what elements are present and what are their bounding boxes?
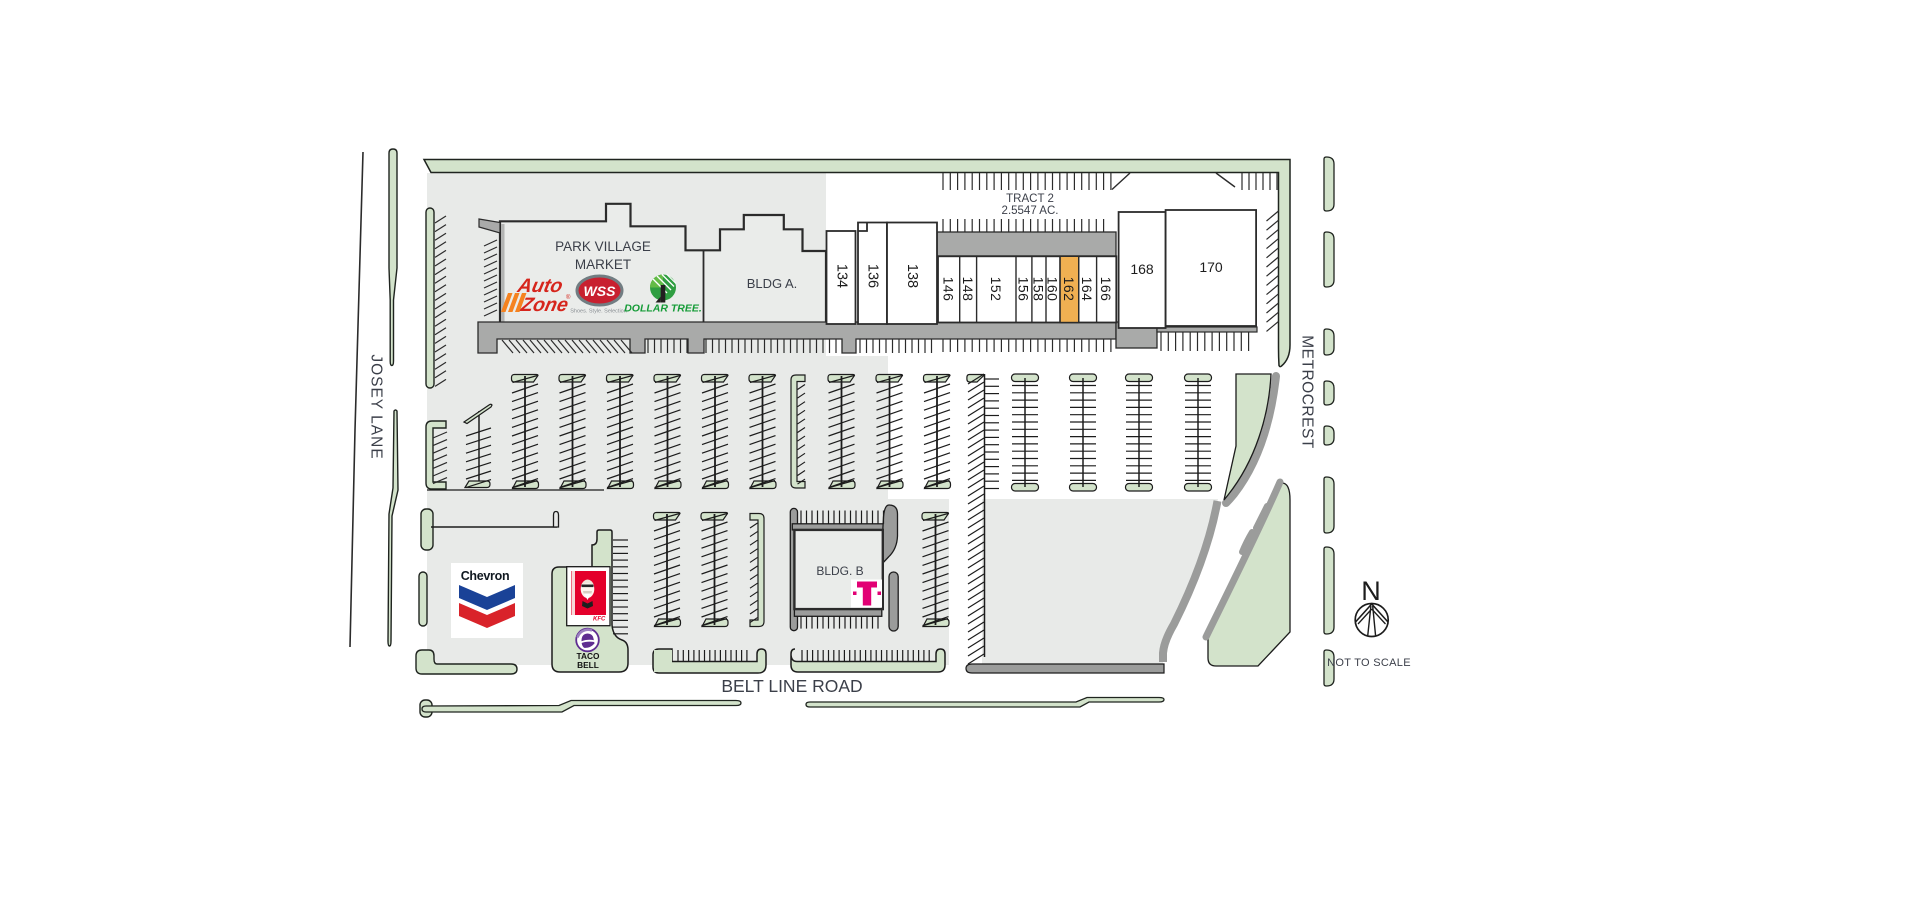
svg-text:METROCREST: METROCREST bbox=[1299, 335, 1316, 449]
svg-text:WSS: WSS bbox=[584, 283, 617, 299]
svg-text:MARKET: MARKET bbox=[575, 257, 631, 272]
svg-text:Shoes. Style. Selection: Shoes. Style. Selection bbox=[570, 309, 627, 315]
svg-text:BLDG. B: BLDG. B bbox=[816, 564, 863, 578]
svg-text:164: 164 bbox=[1079, 277, 1095, 302]
svg-text:152: 152 bbox=[988, 277, 1004, 302]
svg-text:162: 162 bbox=[1061, 277, 1077, 302]
svg-text:Zone: Zone bbox=[518, 294, 570, 316]
svg-text:DOLLAR TREE.: DOLLAR TREE. bbox=[624, 303, 702, 315]
svg-text:138: 138 bbox=[904, 264, 920, 288]
svg-text:TRACT 2: TRACT 2 bbox=[1006, 193, 1054, 205]
svg-text:NOT TO SCALE: NOT TO SCALE bbox=[1327, 657, 1411, 669]
svg-text:166: 166 bbox=[1098, 277, 1114, 302]
svg-text:148: 148 bbox=[960, 277, 976, 302]
svg-text:160: 160 bbox=[1045, 277, 1061, 302]
svg-text:2.5547 AC.: 2.5547 AC. bbox=[1002, 205, 1059, 217]
svg-text:170: 170 bbox=[1199, 259, 1223, 275]
svg-text:KFC: KFC bbox=[593, 617, 606, 623]
svg-text:134: 134 bbox=[834, 264, 850, 288]
svg-text:BLDG A.: BLDG A. bbox=[747, 276, 798, 291]
svg-text:JOSEY LANE: JOSEY LANE bbox=[368, 354, 385, 459]
svg-text:168: 168 bbox=[1130, 261, 1154, 277]
svg-text:BELT LINE ROAD: BELT LINE ROAD bbox=[721, 676, 862, 696]
svg-text:156: 156 bbox=[1016, 277, 1032, 302]
svg-text:Chevron: Chevron bbox=[461, 569, 510, 583]
svg-text:N: N bbox=[1361, 576, 1381, 606]
svg-text:146: 146 bbox=[941, 277, 957, 302]
svg-text:®: ® bbox=[566, 294, 571, 301]
svg-text:BELL: BELL bbox=[577, 660, 599, 670]
svg-text:136: 136 bbox=[865, 264, 881, 288]
svg-text:158: 158 bbox=[1031, 277, 1047, 302]
svg-text:PARK VILLAGE: PARK VILLAGE bbox=[555, 239, 651, 254]
